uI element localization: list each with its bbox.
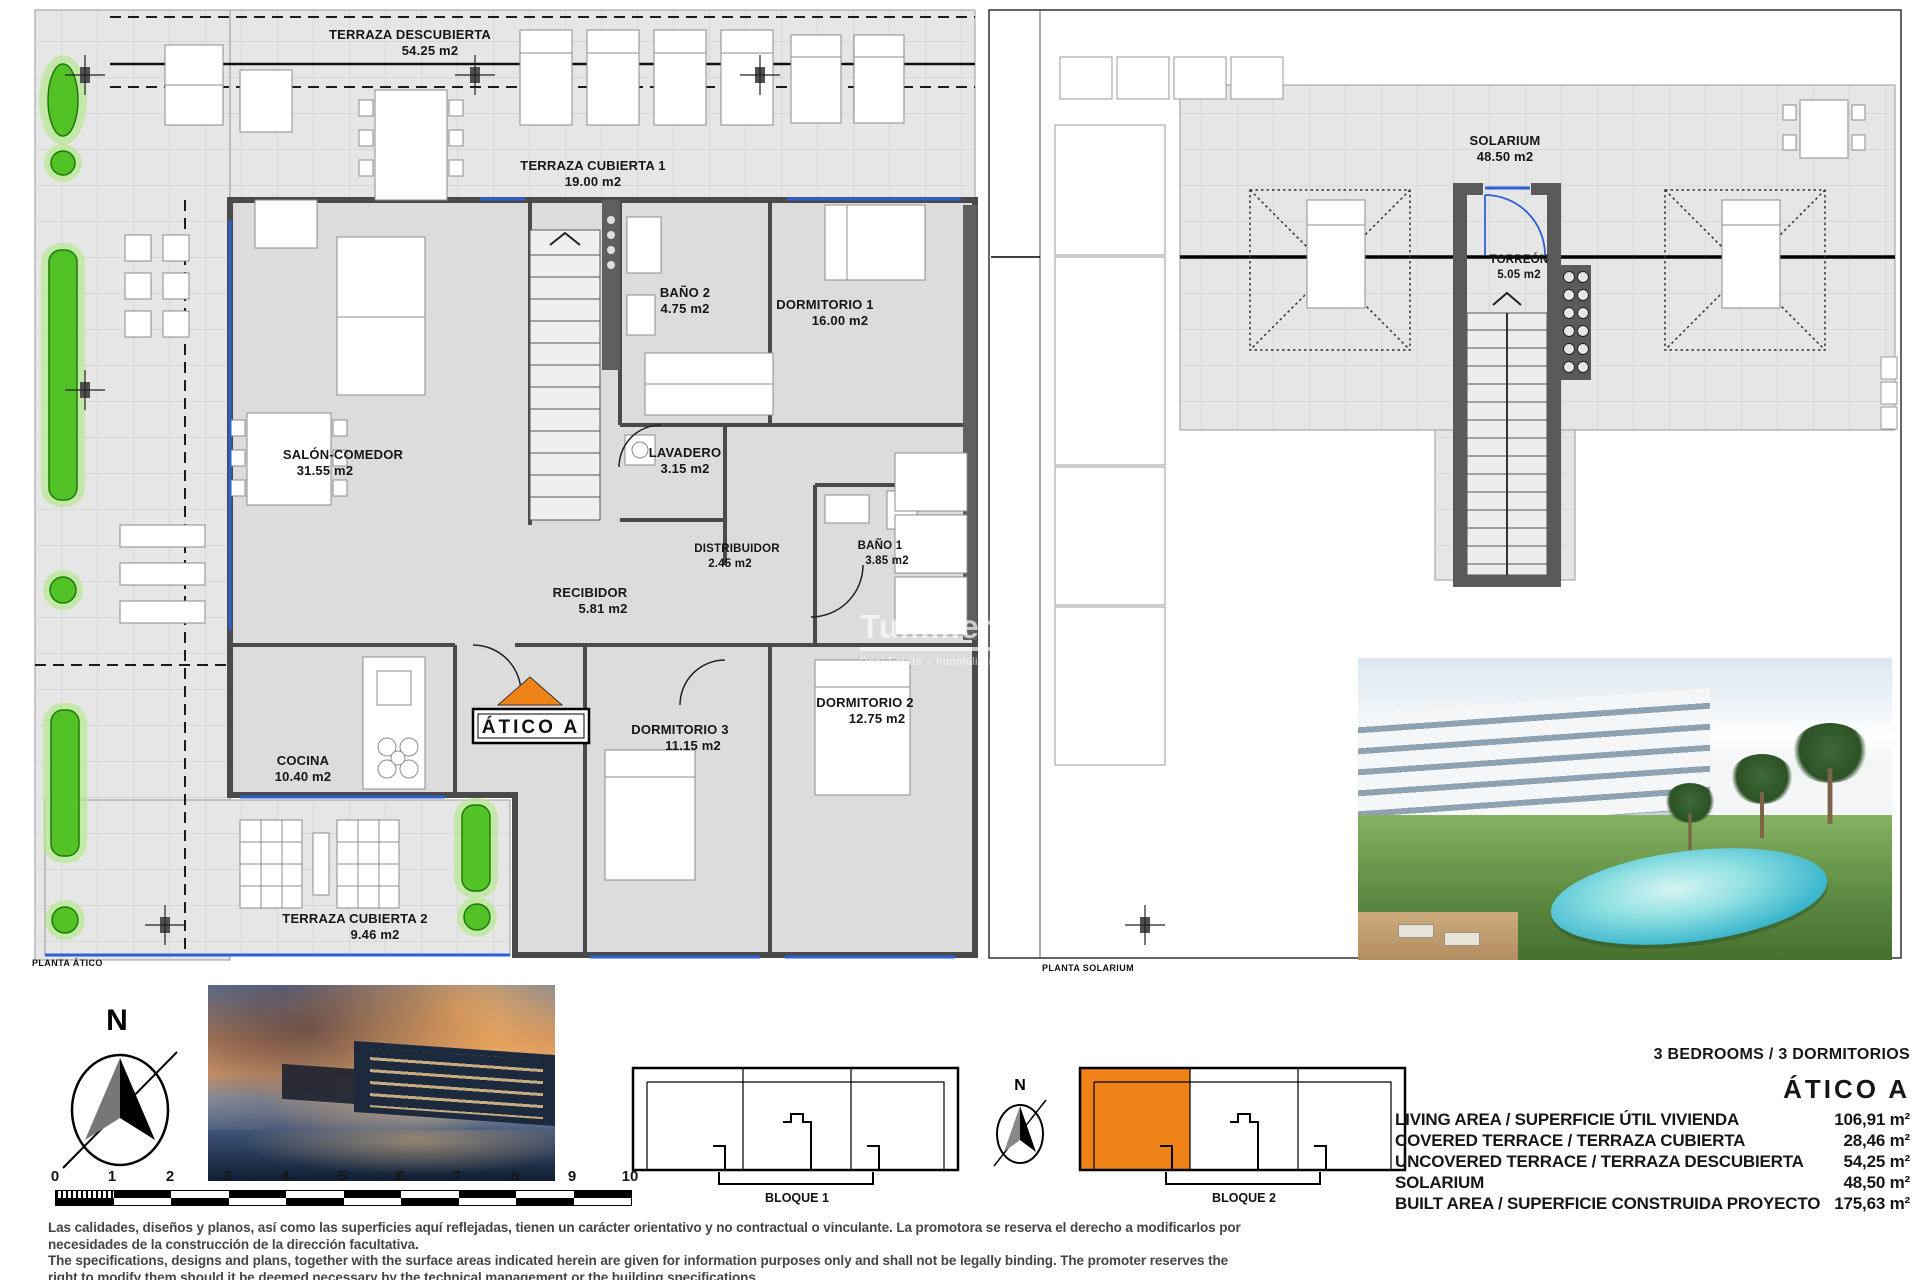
summary-row: SOLARIUM 48,50 m² xyxy=(1395,1172,1910,1193)
block-key-1: BLOQUE 1 xyxy=(625,1060,970,1210)
scale-tick: 3 xyxy=(223,1168,231,1185)
room-label: TERRAZA CUBIERTA 2 xyxy=(282,911,427,926)
unit-name: ÁTICO A xyxy=(1395,1074,1910,1105)
block2-label: BLOQUE 2 xyxy=(1212,1191,1276,1205)
disclaimer-line: The specifications, designs and plans, t… xyxy=(48,1253,1388,1270)
room-area: 4.75 m2 xyxy=(660,301,709,316)
scale-tick: 1 xyxy=(108,1168,116,1185)
room-label: DORMITORIO 1 xyxy=(776,297,874,312)
room-area: 31.55 m2 xyxy=(297,463,354,478)
summary-row: BUILT AREA / SUPERFICIE CONSTRUIDA PROYE… xyxy=(1395,1193,1910,1214)
render-photo-dusk xyxy=(208,985,555,1181)
bedrooms-line: 3 BEDROOMS / 3 DORMITORIOS xyxy=(1395,1046,1910,1064)
block1-label: BLOQUE 1 xyxy=(765,1191,829,1205)
building-silhouette xyxy=(354,1041,555,1126)
scale-tick: 5 xyxy=(338,1168,346,1185)
scale-tick: 7 xyxy=(453,1168,461,1185)
torreon-stairs xyxy=(1453,313,1561,587)
plan-sheet: ÁTICO A TERRAZA DESCUBIERTA 54.25 m2 TER… xyxy=(0,0,1920,1280)
room-area: 19.00 m2 xyxy=(565,174,622,189)
scale-tick: 6 xyxy=(396,1168,404,1185)
summary-value: 48,50 m² xyxy=(1844,1172,1910,1193)
summary-value: 54,25 m² xyxy=(1844,1151,1910,1172)
room-area: 16.00 m2 xyxy=(812,313,869,328)
room-label: SOLARIUM xyxy=(1470,133,1541,148)
room-label: TERRAZA DESCUBIERTA xyxy=(329,27,491,42)
north-label: N xyxy=(1014,1077,1026,1094)
highlighted-unit xyxy=(1080,1068,1190,1170)
room-label: COCINA xyxy=(277,753,330,768)
lit-windows xyxy=(370,1047,543,1118)
summary-value: 28,46 m² xyxy=(1844,1130,1910,1151)
room-label: TORREÓN xyxy=(1490,253,1549,266)
room-area: 12.75 m2 xyxy=(849,711,906,726)
summary-label: UNCOVERED TERRACE / TERRAZA DESCUBIERTA xyxy=(1395,1151,1804,1172)
summary-label: SOLARIUM xyxy=(1395,1172,1484,1193)
summary-row: UNCOVERED TERRACE / TERRAZA DESCUBIERTA … xyxy=(1395,1151,1910,1172)
disclaimer-line: Las calidades, diseños y planos, así com… xyxy=(48,1220,1388,1237)
deck xyxy=(1358,912,1518,960)
disclaimer-line: right to modify them should it be deemed… xyxy=(48,1270,1388,1280)
scale-tick: 9 xyxy=(568,1168,576,1185)
scale-tick: 2 xyxy=(166,1168,174,1185)
room-area: 54.25 m2 xyxy=(402,43,459,58)
sun-lounger xyxy=(1398,924,1434,938)
room-area: 10.40 m2 xyxy=(275,769,332,784)
scale-tick: 8 xyxy=(511,1168,519,1185)
summary-value: 175,63 m² xyxy=(1834,1193,1910,1214)
palm-tree xyxy=(1792,723,1869,783)
summary-label: COVERED TERRACE / TERRAZA CUBIERTA xyxy=(1395,1130,1745,1151)
block-key-2: BLOQUE 2 xyxy=(1072,1060,1417,1210)
room-area: 5.81 m2 xyxy=(578,601,627,616)
room-label: DISTRIBUIDOR xyxy=(694,543,780,555)
summary-label: BUILT AREA / SUPERFICIE CONSTRUIDA PROYE… xyxy=(1395,1193,1820,1214)
area-summary: 3 BEDROOMS / 3 DORMITORIOS ÁTICO A LIVIN… xyxy=(1395,1046,1910,1214)
room-area: 2.45 m2 xyxy=(708,558,752,570)
scale-bar: 0 1 2 3 4 5 6 7 8 9 10 xyxy=(55,1168,630,1212)
disclaimer-line: necesidades de la construcción de la dir… xyxy=(48,1237,1388,1254)
compass-large: N xyxy=(45,1000,195,1185)
floorplan-atico: ÁTICO A TERRAZA DESCUBIERTA 54.25 m2 TER… xyxy=(25,5,985,965)
room-label: RECIBIDOR xyxy=(553,585,628,600)
room-label: SALÓN-COMEDOR xyxy=(283,447,404,462)
sun-lounger xyxy=(1444,932,1480,946)
scale-tick: 0 xyxy=(51,1168,59,1185)
room-label: BAÑO 2 xyxy=(660,285,710,300)
north-label: N xyxy=(106,1004,128,1037)
lower-terrace-furniture xyxy=(240,820,399,908)
stairs xyxy=(530,230,600,520)
scale-bar-bands xyxy=(55,1190,632,1206)
plan-caption-solarium: PLANTA SOLARIUM xyxy=(1042,963,1134,973)
room-area: 9.46 m2 xyxy=(350,927,399,942)
summary-value: 106,91 m² xyxy=(1834,1109,1910,1130)
room-label: DORMITORIO 3 xyxy=(631,722,729,737)
room-area: 3.15 m2 xyxy=(660,461,709,476)
summary-row: COVERED TERRACE / TERRAZA CUBIERTA 28,46… xyxy=(1395,1130,1910,1151)
plan-caption-atico: PLANTA ÁTICO xyxy=(32,958,103,968)
room-label: DORMITORIO 2 xyxy=(816,695,914,710)
compass-small: N xyxy=(982,1072,1057,1182)
room-label: TERRAZA CUBIERTA 1 xyxy=(520,158,665,173)
scale-tick: 4 xyxy=(281,1168,289,1185)
unit-badge-label: ÁTICO A xyxy=(482,716,580,738)
room-area: 5.05 m2 xyxy=(1497,269,1541,281)
room-area: 3.85 m2 xyxy=(865,555,909,567)
room-label: BAÑO 1 xyxy=(858,539,903,552)
palm-tree xyxy=(1664,783,1715,823)
room-area: 11.15 m2 xyxy=(665,738,721,753)
legal-disclaimer: Las calidades, diseños y planos, así com… xyxy=(48,1220,1388,1280)
render-photo-pool xyxy=(1358,658,1892,960)
room-label: LAVADERO xyxy=(649,445,722,460)
summary-label: LIVING AREA / SUPERFICIE ÚTIL VIVIENDA xyxy=(1395,1109,1739,1130)
palm-tree xyxy=(1730,754,1794,804)
summary-row: LIVING AREA / SUPERFICIE ÚTIL VIVIENDA 1… xyxy=(1395,1109,1910,1130)
room-area: 48.50 m2 xyxy=(1477,149,1534,164)
